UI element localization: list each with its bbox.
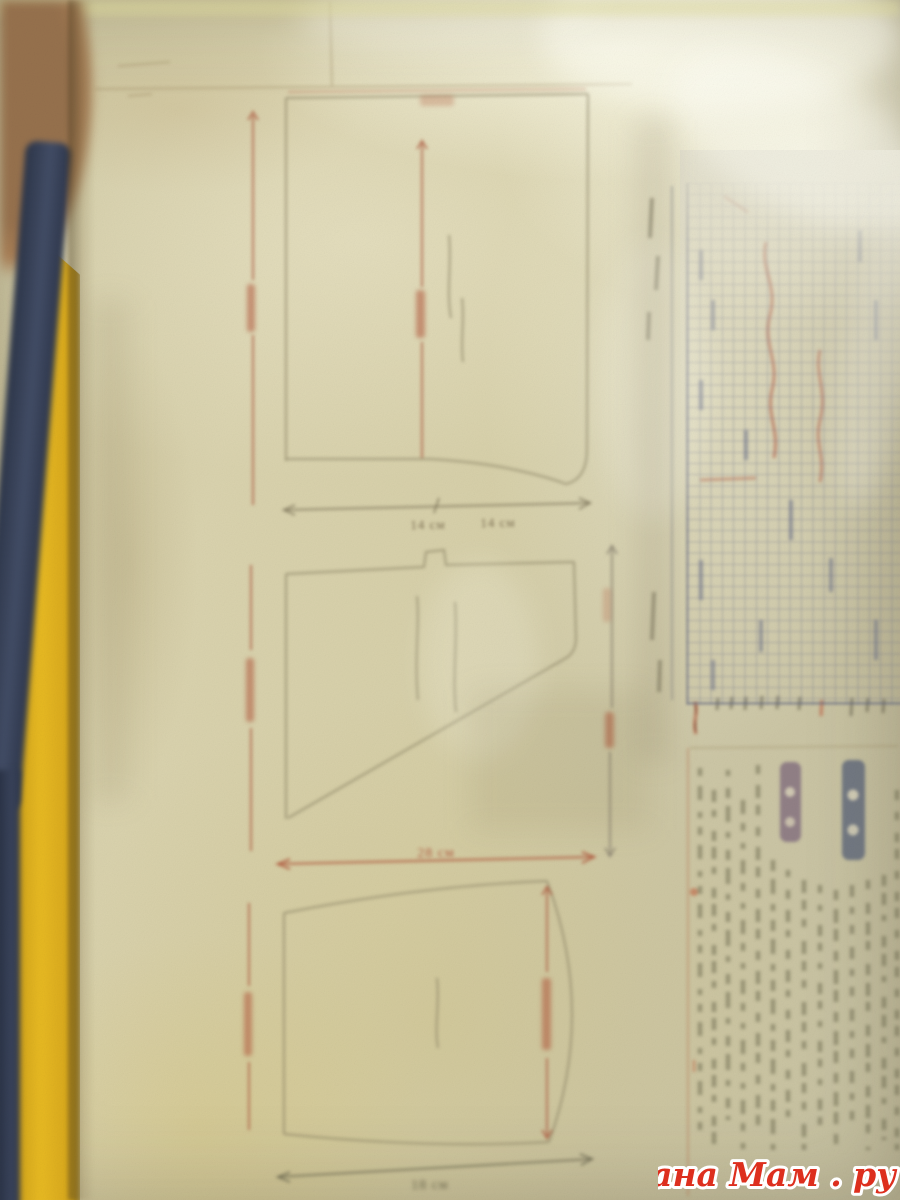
photo-of-knitting-pattern-page: 14 см 14 см 28 см 18 см Страна Мам . ру <box>0 0 900 1200</box>
site-watermark: Страна Мам . ру <box>658 1148 900 1200</box>
watermark-text: Страна Мам . ру <box>658 1155 898 1194</box>
photo-grain <box>0 0 900 1200</box>
